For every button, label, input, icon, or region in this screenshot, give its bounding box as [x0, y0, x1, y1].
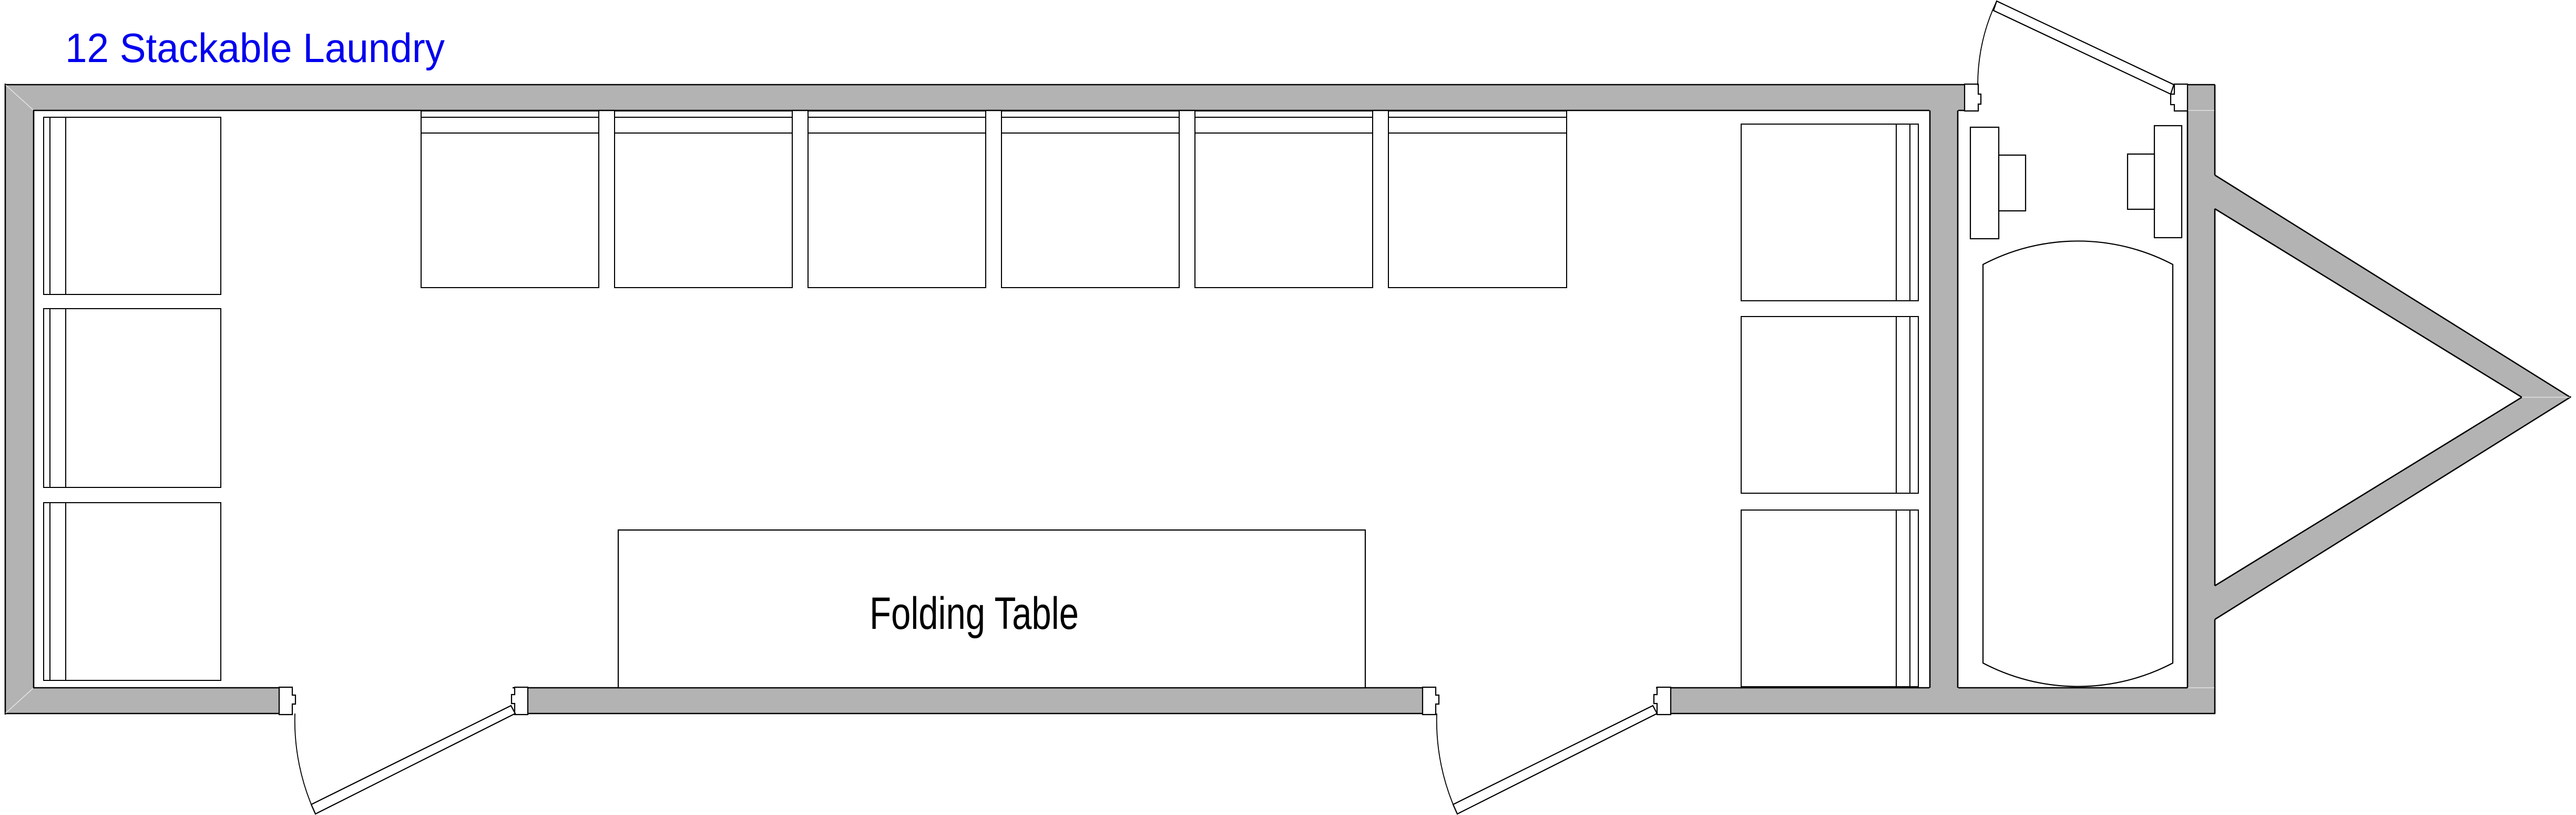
svg-text:Folding Table: Folding Table — [870, 588, 1079, 639]
svg-text:12 Stackable Laundry: 12 Stackable Laundry — [65, 25, 445, 71]
